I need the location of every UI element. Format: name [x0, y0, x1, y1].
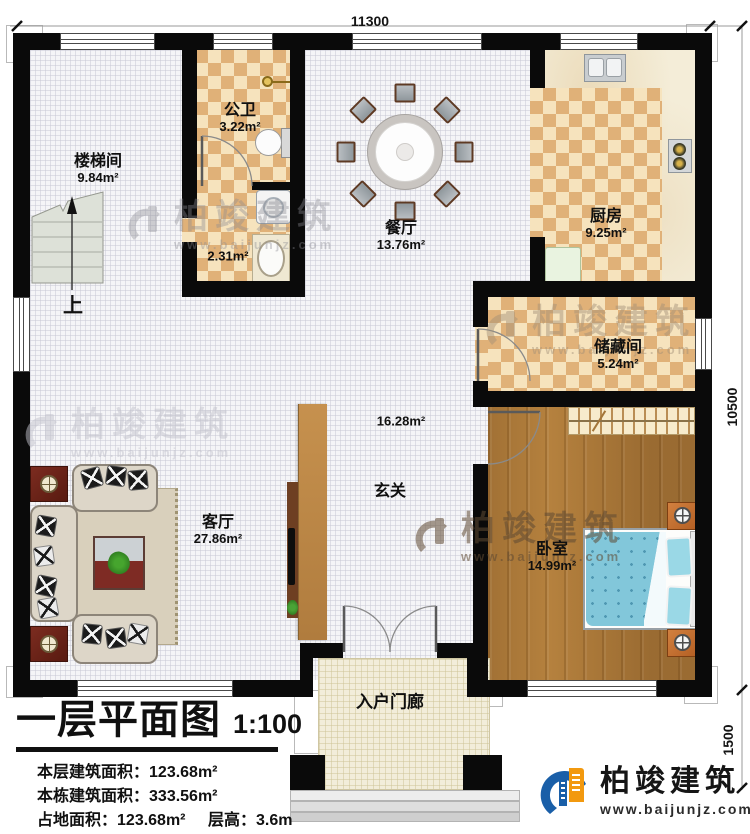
room-area: 5.24m²: [594, 357, 642, 372]
room-area: 9.84m²: [74, 171, 122, 186]
room-area: 3.22m²: [219, 120, 260, 135]
room-area: 13.76m²: [377, 238, 425, 253]
room-area: 16.28m²: [377, 415, 425, 430]
room-area: 14.99m²: [528, 559, 576, 574]
dimension-top: 11300: [330, 13, 410, 29]
room-area: 27.86m²: [194, 532, 242, 547]
brand-url: www.baijunjz.com: [600, 801, 750, 817]
dimension-porch: 1500: [720, 718, 736, 762]
stat-label: 本层建筑面积：: [37, 764, 149, 781]
stat-value: 123.68m²: [117, 812, 186, 829]
door-storage: [478, 329, 530, 381]
room-label-living: 客厅 27.86m²: [194, 514, 242, 546]
door-bathroom: [202, 136, 252, 186]
room-label-porch: 入户门廊: [356, 692, 424, 711]
stat-label: 层高：: [208, 812, 256, 829]
stat-label: 占地面积：: [37, 812, 117, 829]
room-label-stairwell: 楼梯间 9.84m²: [74, 153, 122, 185]
room-label-hall-area: 16.28m²: [377, 415, 425, 430]
room-name: 餐厅: [377, 220, 425, 238]
room-label-hall: 玄关: [374, 483, 406, 501]
room-label-storage: 储藏间 5.24m²: [594, 339, 642, 371]
stairs: [32, 192, 103, 290]
room-name: 卧室: [528, 541, 576, 559]
brand-block: 柏竣建筑 www.baijunjz.com: [538, 762, 750, 822]
stat-row: 本栋建筑面积：333.56m²: [37, 782, 218, 806]
stat-value: 333.56m²: [149, 788, 218, 805]
room-label-laundry: 2.31m²: [207, 250, 248, 265]
room-label-bathroom: 公卫 3.22m²: [219, 102, 260, 134]
stat-value: 3.6m: [256, 812, 292, 829]
room-name: 入户门廊: [356, 692, 424, 711]
door-entrance: [344, 606, 436, 652]
room-name: 厨房: [585, 208, 626, 226]
room-area: 9.25m²: [585, 226, 626, 241]
room-label-bedroom: 卧室 14.99m²: [528, 541, 576, 573]
room-name: 公卫: [219, 102, 260, 120]
brand-logo-icon: [538, 762, 592, 822]
room-name: 楼梯间: [74, 153, 122, 171]
door-bedroom: [488, 412, 540, 464]
plan-scale: 1:100: [233, 710, 302, 740]
stat-label: 本栋建筑面积：: [37, 788, 149, 805]
stat-row: 占地面积：123.68m² 层高：3.6m: [37, 806, 292, 830]
room-name: 客厅: [194, 514, 242, 532]
room-name: 玄关: [374, 483, 406, 501]
stairs-up-label: 上: [63, 295, 83, 317]
room-label-dining: 餐厅 13.76m²: [377, 220, 425, 252]
room-area: 2.31m²: [207, 250, 248, 265]
stat-row: 本层建筑面积：123.68m²: [37, 758, 218, 782]
title-underline: [16, 747, 278, 752]
page-title: 一层平面图: [16, 700, 221, 740]
room-name: 储藏间: [594, 339, 642, 357]
up-label-text: 上: [63, 295, 83, 317]
room-label-kitchen: 厨房 9.25m²: [585, 208, 626, 240]
dimension-right: 10500: [724, 379, 740, 435]
title-block: 一层平面图 1:100: [16, 700, 302, 740]
brand-name: 柏竣建筑: [600, 767, 750, 797]
floor-plan-canvas: 柏竣建筑 www.baijunjz.com 柏竣建筑 www.baijunjz.…: [0, 0, 750, 834]
stat-value: 123.68m²: [149, 764, 218, 781]
dimension-lines: [10, 21, 747, 793]
